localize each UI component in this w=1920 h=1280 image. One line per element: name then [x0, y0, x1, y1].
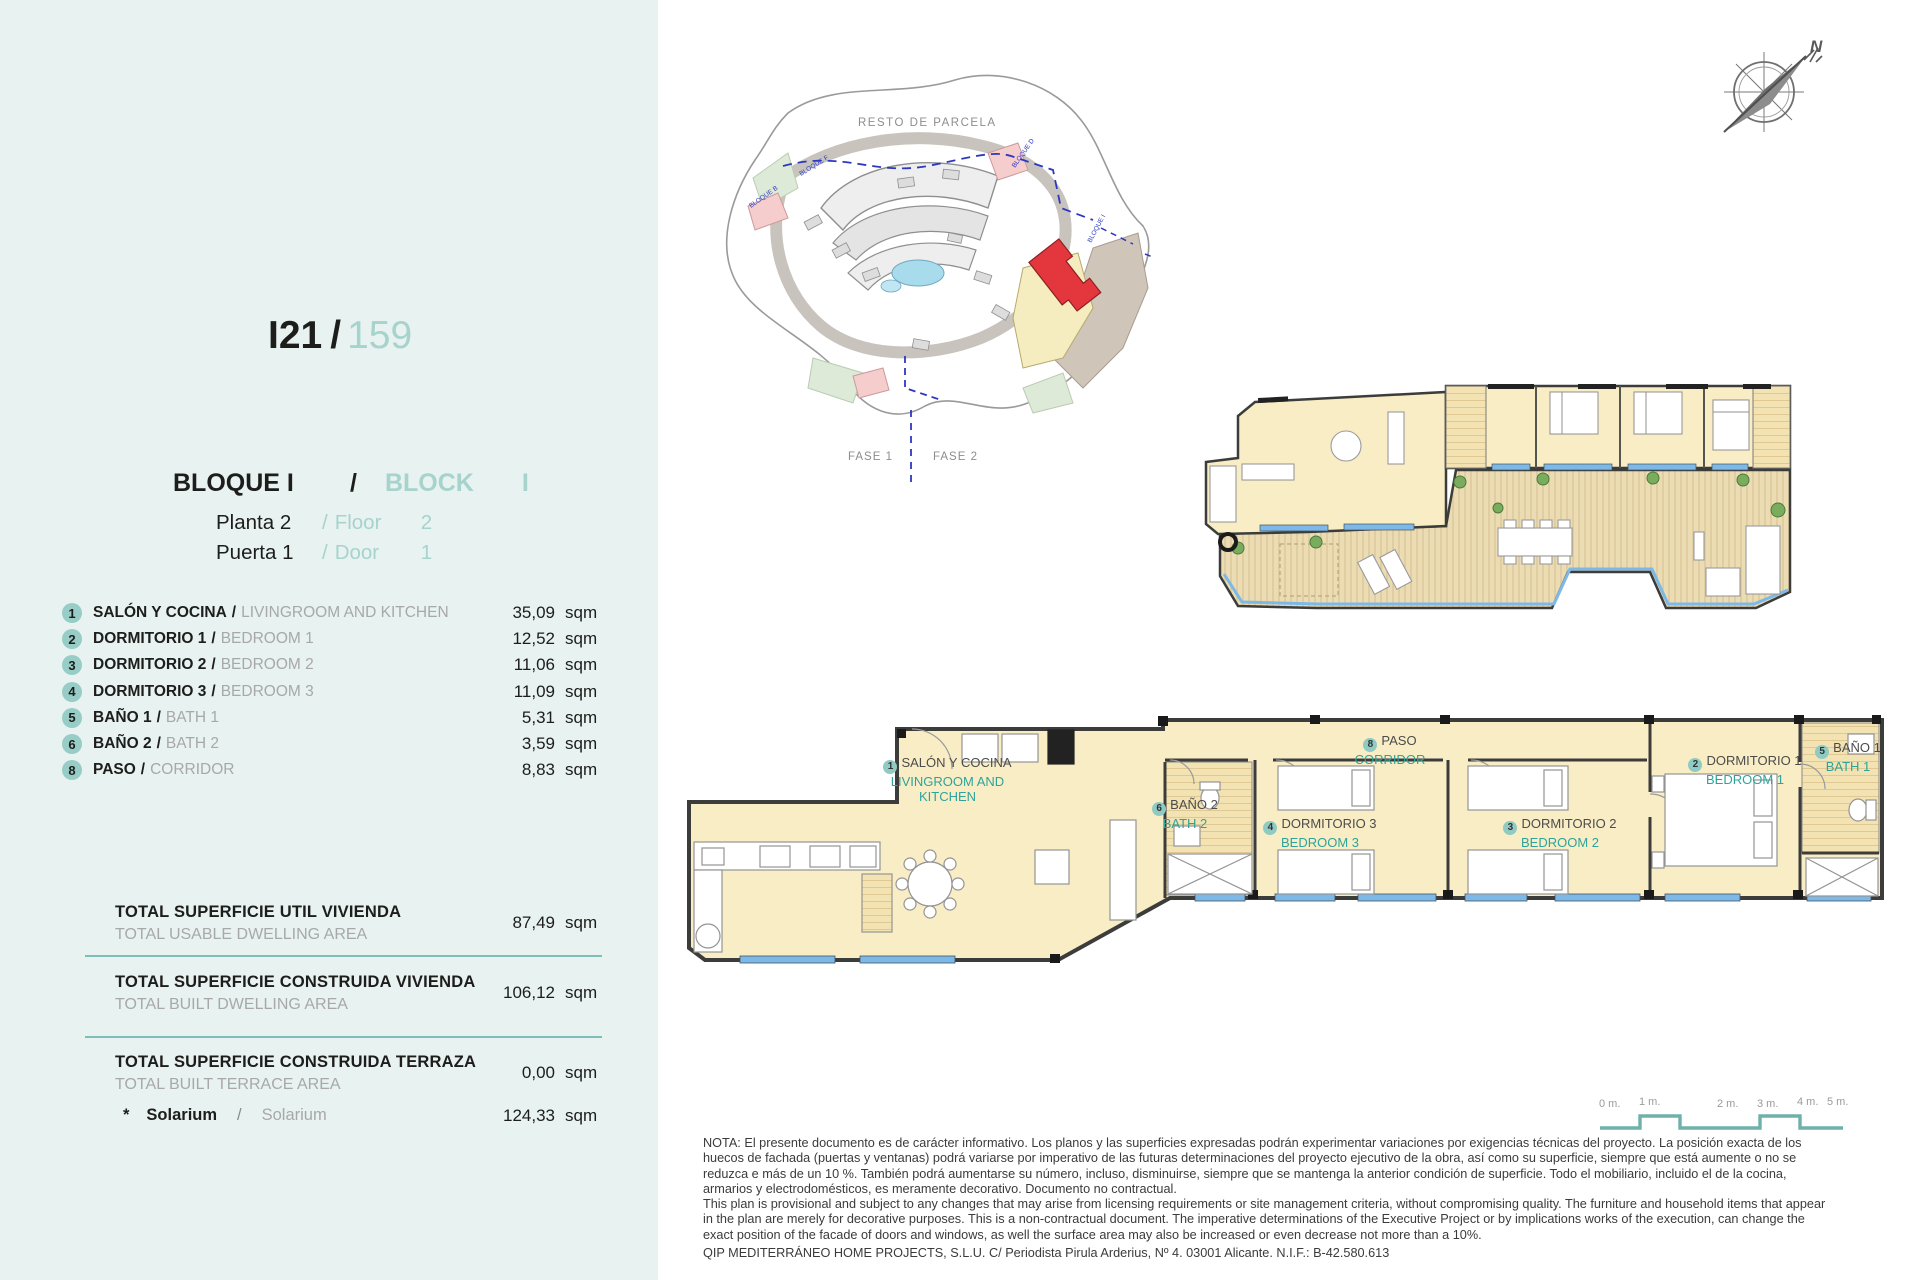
room-number-badge: 1: [62, 603, 82, 623]
room-name-en: BATH 2: [166, 735, 219, 753]
room-row-2: 2 DORMITORIO 1/BEDROOM 1 12,52 sqm: [60, 626, 620, 652]
plan-label-corridor: 8PASO CORRIDOR: [1320, 733, 1460, 767]
plan-label-es: BAÑO 1: [1833, 740, 1881, 755]
plan-label-number: 2: [1688, 758, 1702, 772]
plan-label-en: LIVINGROOM AND KITCHEN: [870, 774, 1025, 805]
plan-label-es: DORMITORIO 2: [1521, 816, 1616, 831]
plan-label-number: 4: [1263, 821, 1277, 835]
room-number-badge: 6: [62, 734, 82, 754]
scale-tick-label: 2 m.: [1717, 1098, 1738, 1110]
room-area-unit: sqm: [565, 629, 597, 649]
room-name-en: BEDROOM 1: [221, 630, 314, 648]
total-unit: sqm: [565, 913, 597, 933]
upper-floor-plan: [1198, 376, 1798, 616]
room-row-6: 6 BAÑO 2/BATH 2 3,59 sqm: [60, 731, 620, 757]
room-area-unit: sqm: [565, 682, 597, 702]
plan-label-en: BATH 2: [1130, 816, 1240, 832]
info-panel: I21/159 BLOQUE I / BLOCK I Planta 2 / Fl…: [0, 0, 658, 1280]
room-separator: /: [211, 630, 215, 648]
room-area-unit: sqm: [565, 603, 597, 623]
plan-label-bath1: 5BAÑO 1 BATH 1: [1798, 740, 1898, 774]
scale-tick-label: 3 m.: [1757, 1098, 1778, 1110]
room-row-4: 4 DORMITORIO 3/BEDROOM 3 11,09 sqm: [60, 679, 620, 705]
plan-label-bedroom3: 4DORMITORIO 3 BEDROOM 3: [1235, 816, 1405, 850]
room-name-en: CORRIDOR: [150, 761, 234, 779]
north-compass-icon: N: [1712, 30, 1842, 145]
resto-de-parcela-label: RESTO DE PARCELA: [858, 117, 997, 129]
room-number-badge: 2: [62, 629, 82, 649]
room-name-es: DORMITORIO 3: [93, 683, 206, 701]
total-usable-area: TOTAL SUPERFICIE UTIL VIVIENDA TOTAL USA…: [115, 903, 660, 944]
room-row-5: 5 BAÑO 1/BATH 1 5,31 sqm: [60, 705, 620, 731]
door-label-es: Puerta 1: [216, 541, 322, 565]
room-name-es: BAÑO 2: [93, 735, 152, 753]
room-name-es: DORMITORIO 1: [93, 630, 206, 648]
solarium-asterisk: *: [123, 1106, 129, 1125]
plan-label-es: BAÑO 2: [1170, 797, 1218, 812]
room-number-badge: 8: [62, 760, 82, 780]
room-number-badge: 4: [62, 682, 82, 702]
room-area-value: 12,52: [460, 629, 555, 649]
block-value-en: I: [522, 469, 529, 498]
door-label-en: Door: [335, 541, 401, 565]
room-area-value: 11,06: [460, 655, 555, 675]
scale-tick-label: 0 m.: [1599, 1098, 1620, 1110]
room-name-es: SALÓN Y COCINA: [93, 604, 227, 622]
room-name-en: LIVINGROOM AND KITCHEN: [241, 604, 449, 622]
divider-line: [85, 955, 602, 957]
room-name-es: PASO: [93, 761, 136, 779]
fase1-label: FASE 1: [848, 451, 893, 463]
room-name-en: BEDROOM 2: [221, 656, 314, 674]
room-number-badge: 5: [62, 708, 82, 728]
plan-label-es: PASO: [1381, 733, 1416, 748]
disclaimer-note: NOTA: El presente documento es de caráct…: [703, 1136, 1836, 1261]
room-number-badge: 3: [62, 655, 82, 675]
fase2-label: FASE 2: [933, 451, 978, 463]
room-name-es: BAÑO 1: [93, 709, 152, 727]
plan-label-bedroom2: 3DORMITORIO 2 BEDROOM 2: [1475, 816, 1645, 850]
disclaimer-es: NOTA: El presente documento es de caráct…: [703, 1136, 1836, 1197]
room-name-en: BEDROOM 3: [221, 683, 314, 701]
room-name-en: BATH 1: [166, 709, 219, 727]
room-area-unit: sqm: [565, 655, 597, 675]
solarium-unit: sqm: [565, 1106, 597, 1126]
north-letter: N: [1810, 37, 1823, 56]
scale-tick-label: 5 m.: [1827, 1096, 1848, 1108]
room-separator: /: [157, 735, 161, 753]
room-name-es: DORMITORIO 2: [93, 656, 206, 674]
room-area-value: 5,31: [460, 708, 555, 728]
floor-label-es: Planta 2: [216, 511, 322, 535]
block-label-en: BLOCK: [385, 469, 474, 498]
floor-value-en: 2: [421, 511, 432, 535]
room-separator: /: [232, 604, 236, 622]
plan-label-en: BATH 1: [1798, 759, 1898, 775]
scale-tick-label: 1 m.: [1639, 1096, 1660, 1108]
total-built-area: TOTAL SUPERFICIE CONSTRUIDA VIVIENDA TOT…: [115, 973, 660, 1014]
room-area-value: 8,83: [460, 760, 555, 780]
plan-label-bath2: 6BAÑO 2 BATH 2: [1130, 797, 1240, 831]
total-unit: sqm: [565, 1063, 597, 1083]
plan-label-en: CORRIDOR: [1320, 752, 1460, 768]
floor-separator: /: [322, 511, 328, 535]
total-value: 87,49: [460, 913, 555, 933]
total-unit: sqm: [565, 983, 597, 1003]
room-area-unit: sqm: [565, 734, 597, 754]
solarium-label-es: Solarium: [146, 1106, 217, 1125]
disclaimer-en: This plan is provisional and subject to …: [703, 1197, 1836, 1243]
room-row-3: 3 DORMITORIO 2/BEDROOM 2 11,06 sqm: [60, 652, 620, 678]
unit-code: I21: [268, 314, 322, 357]
plan-label-es: DORMITORIO 1: [1706, 753, 1801, 768]
scale-tick-label: 4 m.: [1797, 1096, 1818, 1108]
room-area-value: 11,09: [460, 682, 555, 702]
plan-label-number: 3: [1503, 821, 1517, 835]
room-separator: /: [141, 761, 145, 779]
room-area-unit: sqm: [565, 708, 597, 728]
unit-title: I21/159: [268, 314, 412, 358]
room-area-unit: sqm: [565, 760, 597, 780]
door-value-en: 1: [421, 541, 432, 565]
room-list: 1 SALÓN Y COCINA/LIVINGROOM AND KITCHEN …: [60, 600, 620, 783]
plan-label-living: 1SALÓN Y COCINA LIVINGROOM AND KITCHEN: [870, 755, 1025, 805]
room-area-value: 35,09: [460, 603, 555, 623]
plan-label-es: SALÓN Y COCINA: [901, 755, 1011, 770]
solarium-label-en: Solarium: [262, 1106, 327, 1125]
solarium-value: 124,33: [460, 1106, 555, 1126]
room-row-8: 8 PASO/CORRIDOR 8,83 sqm: [60, 757, 620, 783]
total-value: 0,00: [460, 1063, 555, 1083]
solarium-row: * Solarium / Solarium 124,33 sqm: [123, 1106, 668, 1125]
total-value: 106,12: [460, 983, 555, 1003]
company-line: QIP MEDITERRÁNEO HOME PROJECTS, S.L.U. C…: [703, 1246, 1836, 1261]
plan-label-en: BEDROOM 2: [1475, 835, 1645, 851]
block-separator: /: [350, 469, 357, 498]
plan-label-number: 8: [1363, 738, 1377, 752]
block-row: BLOQUE I / BLOCK I: [173, 469, 529, 498]
room-separator: /: [211, 683, 215, 701]
total-terrace-area: TOTAL SUPERFICIE CONSTRUIDA TERRAZA TOTA…: [115, 1053, 660, 1094]
divider-line: [85, 1036, 602, 1038]
door-row: Puerta 1 / Door 1: [216, 541, 432, 565]
title-separator: /: [330, 314, 341, 357]
floor-label-en: Floor: [335, 511, 401, 535]
door-separator: /: [322, 541, 328, 565]
room-area-value: 3,59: [460, 734, 555, 754]
site-plan-map: BLOQUE B BLOQUE F BLOQUE D BLOQUE I REST…: [693, 58, 1155, 488]
plan-label-number: 1: [883, 760, 897, 774]
plan-label-number: 5: [1815, 745, 1829, 759]
block-label-es: BLOQUE I: [173, 469, 350, 498]
floor-plan-sheet: I21/159 BLOQUE I / BLOCK I Planta 2 / Fl…: [0, 0, 1920, 1280]
plan-label-en: BEDROOM 3: [1235, 835, 1405, 851]
room-separator: /: [211, 656, 215, 674]
plan-label-es: DORMITORIO 3: [1281, 816, 1376, 831]
unit-number: 159: [347, 314, 412, 357]
plan-label-number: 6: [1152, 802, 1166, 816]
scale-bar: 0 m. 1 m. 2 m. 3 m. 4 m. 5 m.: [1595, 1092, 1855, 1142]
room-separator: /: [157, 709, 161, 727]
room-row-1: 1 SALÓN Y COCINA/LIVINGROOM AND KITCHEN …: [60, 600, 620, 626]
floor-row: Planta 2 / Floor 2: [216, 511, 432, 535]
solarium-separator: /: [237, 1106, 242, 1125]
